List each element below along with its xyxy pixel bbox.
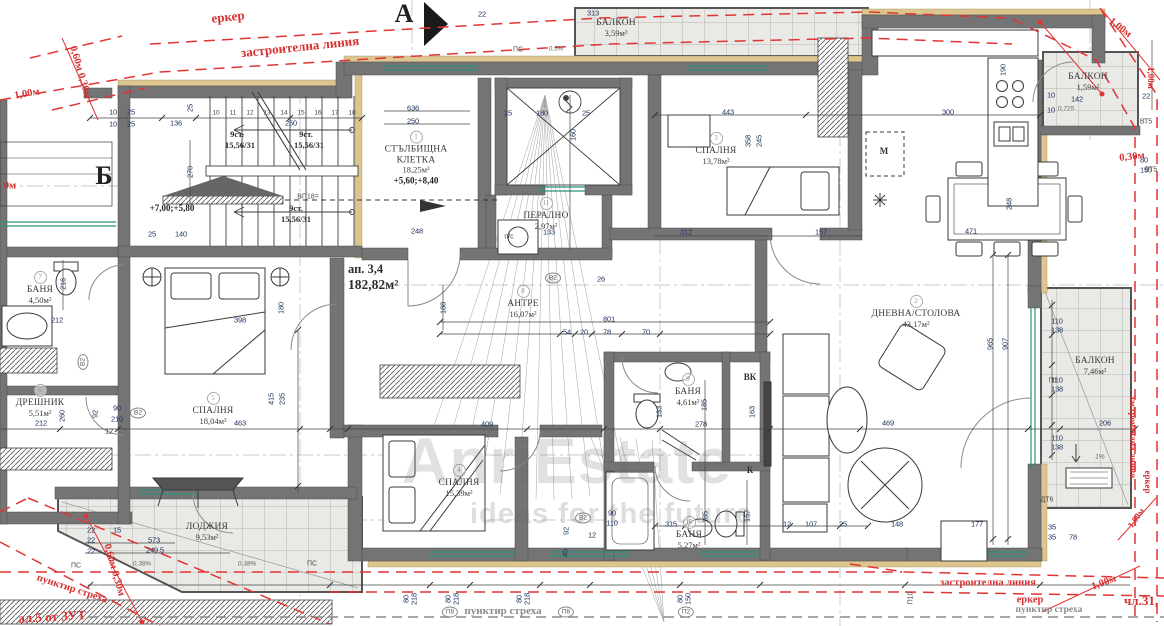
dimension-label: 312 — [680, 228, 692, 237]
annotation-label: 0,38% — [133, 561, 151, 568]
dimension-label: 249,5 — [146, 546, 164, 555]
room-label: 6ДРЕШНИК5,51м² — [5, 384, 75, 418]
apartment-label: ап. 3,4 182,82м² — [348, 262, 398, 293]
stair-tread-number: 12 — [246, 110, 253, 117]
dimension-label: 150 — [684, 593, 693, 605]
room-label: БАЛКОН1,59м² — [1053, 72, 1123, 92]
annotation-label: П8 — [558, 607, 574, 618]
stair-tread-number: 15 — [297, 110, 304, 117]
section-marker-a: А — [395, 0, 414, 29]
annotation-label: 9ст. — [230, 129, 244, 139]
room-area: 13,78м² — [681, 157, 751, 167]
dimension-label: 10 — [109, 120, 117, 129]
dimension-label: 138 — [1051, 385, 1063, 394]
dimension-label: 206 — [1099, 419, 1111, 428]
annotation-label: П10 — [908, 592, 915, 605]
annotation-label: 0,60м 0,30м — [67, 45, 92, 100]
annotation-label: 1,00м — [1126, 506, 1147, 530]
dimension-label: 180 — [536, 109, 548, 118]
floor-plan-page: 1362501025102525270251402486362502231325… — [0, 0, 1164, 626]
annotation-label: П2 — [678, 607, 694, 618]
dimension-label: 15 — [113, 526, 121, 535]
room-levels: +5,60;+8,40 — [372, 175, 460, 185]
annotation-label: ДТ6 — [1041, 497, 1054, 504]
dimension-label: 35 — [1048, 523, 1056, 532]
room-number: 5 — [207, 392, 220, 405]
annotation-label: П1 — [1049, 378, 1058, 385]
annotation-label: В2 — [130, 408, 146, 419]
annotation-label: 15,56/31 — [294, 140, 324, 150]
room-area: 4,50м² — [10, 296, 70, 306]
annotation-label: В2 — [545, 273, 561, 284]
annotation-label: +7,00;+5,80 — [150, 203, 195, 213]
annotation-label: 15,56/31 — [281, 214, 311, 224]
dimension-label: 636 — [407, 104, 419, 113]
dimension-label: 965 — [986, 338, 995, 350]
room-area: 3,59м² — [581, 29, 651, 39]
annotation-label: еркер — [1017, 595, 1044, 606]
dimension-label: 22 — [478, 10, 486, 19]
room-area: 18,04м² — [178, 417, 248, 427]
room-number: 6 — [34, 384, 47, 397]
stair-tread-number: 13 — [263, 110, 270, 117]
room-label: ЛОДЖИЯ9,53м² — [172, 522, 242, 542]
dimension-label: 138 — [1051, 443, 1063, 452]
dimension-label: 110 — [1051, 434, 1062, 443]
stair-tread-number: 17 — [331, 110, 338, 117]
dimension-label: 245 — [755, 135, 764, 147]
annotation-label: 0,38% — [238, 561, 256, 568]
dimension-label: 471 — [965, 227, 977, 236]
dimension-label: 469 — [882, 419, 894, 428]
annotation-label: ВК — [744, 372, 757, 382]
dimension-label: 10 — [1047, 106, 1055, 115]
dimension-label: 136 — [170, 119, 182, 128]
dimension-label: 22 — [87, 526, 95, 535]
dimension-label: 45 — [561, 549, 570, 557]
annotation-label: 1% — [1095, 454, 1104, 461]
annotation-label: 1,00м — [13, 86, 40, 101]
dimension-label: 157 — [815, 228, 827, 237]
apartment-number: ап. 3,4 — [348, 262, 398, 277]
annotation-label: пунктир стреха — [35, 572, 108, 605]
dimension-label: 142 — [1071, 95, 1083, 104]
annotation-label: застроителна линия — [240, 33, 360, 61]
dimension-label: 177 — [971, 520, 983, 529]
dimension-label: 212 — [35, 419, 47, 428]
room-area: 16,07м² — [493, 310, 553, 320]
annotation-label: 0м — [4, 181, 16, 192]
room-label: 1СТЪЛБИЩНА КЛЕТКА18,25м²+5,60;+8,40 — [372, 131, 460, 186]
dimension-label: 163 — [748, 406, 757, 418]
annotation-label: застроителна линия — [1128, 396, 1138, 478]
room-number: 9 — [682, 373, 695, 386]
room-label: БАЛКОН3,59м² — [581, 18, 651, 38]
room-label: 2ДНЕВНА/СТОЛОВА43,17м² — [851, 295, 981, 329]
dimension-label: 22 — [87, 536, 95, 545]
room-area: 9,53м² — [172, 533, 242, 543]
annotation-label: п/с — [504, 234, 513, 241]
dimension-label: 78 — [1069, 533, 1077, 542]
annotation-label: 0,725 — [1058, 106, 1074, 113]
dimension-label: 25 — [186, 104, 195, 112]
dimension-label: 20 — [580, 328, 588, 337]
annotation-label: 1,00м — [1146, 67, 1156, 89]
dimension-label: 25 — [148, 230, 156, 239]
dimension-label: 212 — [51, 316, 63, 325]
dimension-label: 78 — [603, 328, 611, 337]
room-area: 2,97м² — [511, 222, 581, 232]
dimension-label: 90 — [113, 404, 121, 413]
room-area: 5,27м² — [659, 541, 719, 551]
dimension-label: 235 — [278, 393, 287, 405]
dimension-label: 54 — [563, 328, 571, 337]
annotation-label: пунктир стреха — [1016, 605, 1083, 615]
room-label: 8АНТРЕ16,07м² — [493, 285, 553, 319]
dimension-label: 25 — [127, 108, 135, 117]
annotation-label: П8 — [442, 607, 458, 618]
room-number: 2 — [910, 295, 923, 308]
room-number: 3 — [710, 132, 723, 145]
watermark-tagline: ideas for the future — [470, 498, 753, 531]
dimension-label: 70 — [642, 328, 650, 337]
dimension-label: 107 — [805, 520, 817, 529]
room-label: 9БАНЯ4,61м² — [658, 373, 718, 407]
annotation-label: ВП18= — [297, 194, 319, 201]
labels-layer: 1362501025102525270251402486362502231325… — [0, 0, 1164, 626]
room-name: СТЪЛБИЩНА КЛЕТКА — [372, 145, 460, 166]
annotation-label: застроителна линия — [940, 578, 1036, 589]
annotation-label: еркер — [1143, 471, 1153, 494]
room-number: 7 — [34, 271, 47, 284]
dimension-label: 188 — [439, 302, 448, 314]
dimension-label: 415 — [267, 393, 276, 405]
dimension-label: 573 — [148, 536, 160, 545]
room-label: 7БАНЯ4,50м² — [10, 271, 70, 305]
stair-tread-number: 10 — [212, 110, 219, 117]
room-label: 3СПАЛНЯ13,78м² — [681, 132, 751, 166]
room-number: 11 — [540, 197, 553, 210]
dimension-label: 138 — [1051, 326, 1063, 335]
room-area: 1,59м² — [1053, 83, 1123, 93]
dimension-label: 180 — [277, 302, 286, 314]
dimension-label: 22 — [1142, 92, 1150, 101]
dimension-label: 250 — [285, 119, 297, 128]
annotation-label: ПС — [71, 563, 81, 570]
dimension-label: 218 — [410, 593, 419, 605]
dimension-label: 12 — [105, 427, 113, 436]
dimension-label: 26 — [597, 275, 605, 284]
dimension-label: 190 — [999, 64, 1008, 76]
apartment-area: 182,82м² — [348, 277, 398, 293]
dimension-label: 218 — [523, 593, 532, 605]
dimension-label: 398 — [234, 316, 246, 325]
room-label: 5СПАЛНЯ18,04м² — [178, 392, 248, 426]
stair-tread-number: 11 — [230, 110, 237, 117]
stair-tread-number: 18 — [348, 110, 355, 117]
dimension-label: 210 — [111, 415, 123, 424]
dimension-label: 801 — [603, 315, 615, 324]
dimension-label: 270 — [186, 166, 195, 178]
room-number: 8 — [517, 285, 530, 298]
watermark-brand: AnriEstate — [402, 424, 732, 498]
annotation-label: 9ст. — [299, 129, 313, 139]
annotation-label: 0,5% — [549, 46, 564, 53]
annotation-label: еркер — [211, 7, 246, 26]
dimension-label: 110 — [1051, 317, 1062, 326]
dimension-label: 248 — [411, 227, 423, 236]
room-label: БАЛКОН7,46м² — [1060, 356, 1130, 376]
dimension-label: 35 — [1048, 533, 1056, 542]
dimension-label: 25 — [839, 520, 847, 529]
dimension-label: 250 — [407, 117, 419, 126]
annotation-label: ал.5 от ЗУТ — [18, 607, 86, 626]
room-area: 4,61м² — [658, 398, 718, 408]
dimension-label: 25 — [504, 109, 512, 118]
annotation-label: 15,56/31 — [225, 140, 255, 150]
dimension-label: 12 — [783, 520, 791, 529]
dimension-label: 12 — [588, 531, 596, 540]
dimension-label: 148 — [891, 520, 903, 529]
annotation-label: 0,60м 0,30м — [101, 543, 126, 598]
room-area: 18,25м² — [372, 166, 460, 176]
section-marker-b: Б — [95, 161, 112, 191]
dimension-label: 160 — [569, 129, 578, 141]
annotation-label: ПС — [513, 47, 523, 54]
dimension-label: 300 — [942, 108, 954, 117]
annotation-label: ПС — [307, 561, 317, 568]
room-number: 1 — [410, 131, 423, 144]
dimension-label: 443 — [722, 108, 734, 117]
stair-tread-number: 14 — [280, 110, 287, 117]
dimension-label: 248 — [1005, 198, 1014, 210]
annotation-label: пунктир стреха — [464, 605, 541, 617]
dimension-label: 92 — [91, 410, 100, 418]
dimension-label: 313 — [587, 9, 599, 18]
stair-tread-number: 16 — [314, 110, 321, 117]
dimension-label: 133 — [655, 406, 664, 418]
dimension-label: 218 — [452, 593, 461, 605]
dimension-label: 140 — [175, 230, 187, 239]
dimension-label: 10 — [109, 108, 117, 117]
annotation-label: чл.31, — [1124, 593, 1158, 609]
annotation-label: М — [880, 146, 889, 156]
annotation-label: В2 — [78, 354, 89, 370]
room-area: 5,51м² — [5, 409, 75, 419]
annotation-label: 9ст. — [289, 203, 303, 213]
annotation-label: ВТ5 — [1140, 119, 1152, 126]
dimension-label: 907 — [1001, 338, 1010, 350]
dimension-label: 25 — [582, 109, 590, 118]
dimension-label: 25 — [127, 120, 135, 129]
annotation-label: 1,00м — [1090, 573, 1118, 592]
room-area: 43,17м² — [851, 320, 981, 330]
annotation-label: 1,00м — [1107, 16, 1134, 40]
annotation-label: ВТ5 — [1145, 167, 1157, 174]
room-area: 7,46м² — [1060, 367, 1130, 377]
room-label: 11ПЕРАЛНО2,97м² — [511, 197, 581, 231]
dimension-label: 22 — [87, 547, 95, 556]
annotation-label: К — [747, 465, 754, 475]
